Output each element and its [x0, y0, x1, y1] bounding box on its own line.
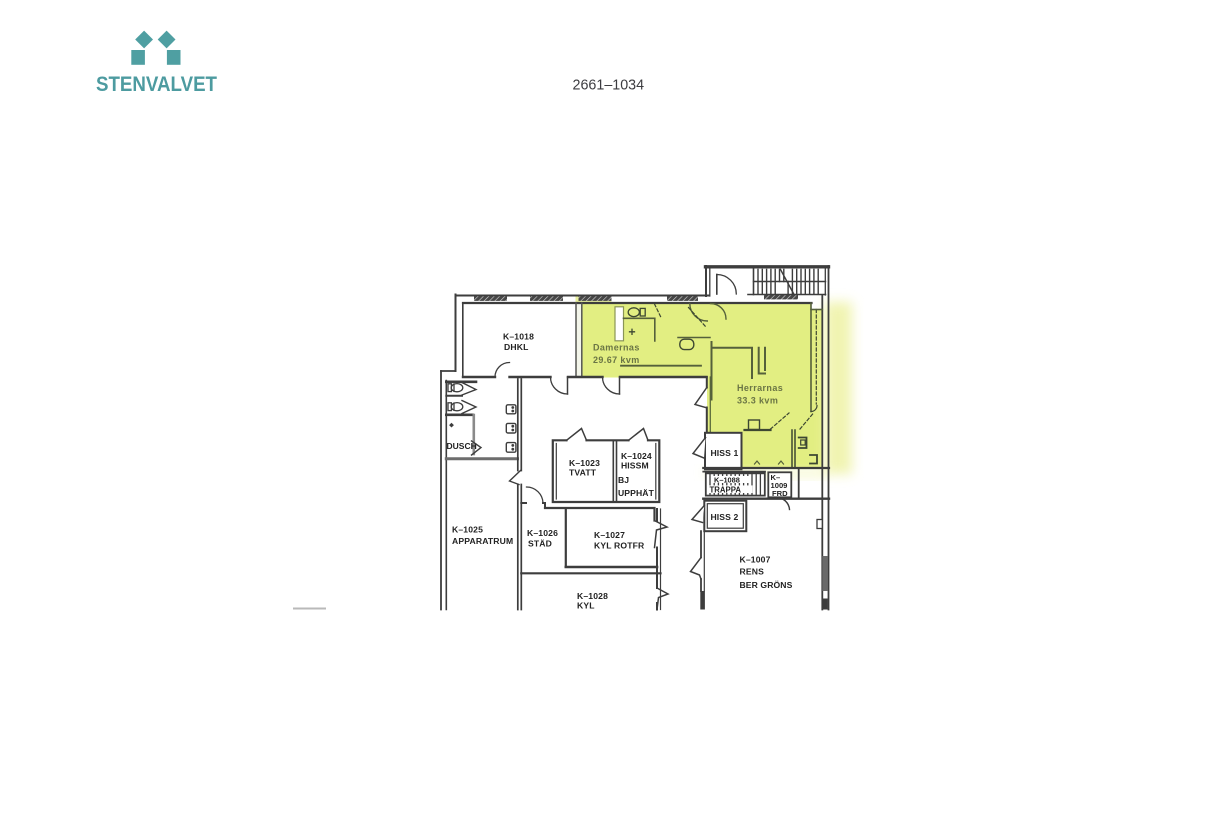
svg-text:Damernas: Damernas [593, 343, 640, 353]
svg-text:K–1024: K–1024 [621, 451, 652, 461]
svg-text:K–1023: K–1023 [569, 458, 600, 468]
svg-text:HISS 1: HISS 1 [711, 448, 739, 458]
svg-text:UPPHÄT: UPPHÄT [618, 488, 655, 498]
svg-text:K–1026: K–1026 [527, 528, 558, 538]
svg-text:Herrarnas: Herrarnas [737, 383, 783, 393]
svg-text:HISS 2: HISS 2 [711, 512, 739, 522]
svg-text:33.3 kvm: 33.3 kvm [737, 396, 778, 406]
svg-text:TVATT: TVATT [569, 468, 597, 478]
svg-text:STENVALVET: STENVALVET [96, 72, 217, 96]
svg-text:KYL ROTFR: KYL ROTFR [594, 541, 645, 551]
svg-text:DHKL: DHKL [504, 342, 528, 352]
svg-text:KYL: KYL [577, 601, 595, 611]
svg-text:HISSM: HISSM [621, 461, 649, 471]
svg-text:K–1028: K–1028 [577, 591, 608, 601]
svg-text:RENS: RENS [740, 567, 765, 577]
svg-text:K–1007: K–1007 [740, 555, 771, 565]
svg-text:TRAPPA: TRAPPA [710, 485, 742, 494]
svg-text:29.67 kvm: 29.67 kvm [593, 355, 640, 365]
svg-text:FRD: FRD [772, 489, 788, 498]
svg-text:DUSCH: DUSCH [447, 441, 477, 451]
svg-text:2661–1034: 2661–1034 [573, 78, 645, 94]
svg-text:K–1027: K–1027 [594, 530, 625, 540]
svg-text:STÄD: STÄD [528, 539, 552, 549]
svg-text:K–1018: K–1018 [503, 332, 534, 342]
svg-text:BER GRÖNS: BER GRÖNS [740, 580, 793, 590]
svg-text:K–1088: K–1088 [714, 475, 740, 484]
svg-text:K–1025: K–1025 [452, 525, 483, 535]
svg-text:APPARATRUM: APPARATRUM [452, 536, 513, 546]
svg-text:BJ: BJ [618, 475, 629, 485]
